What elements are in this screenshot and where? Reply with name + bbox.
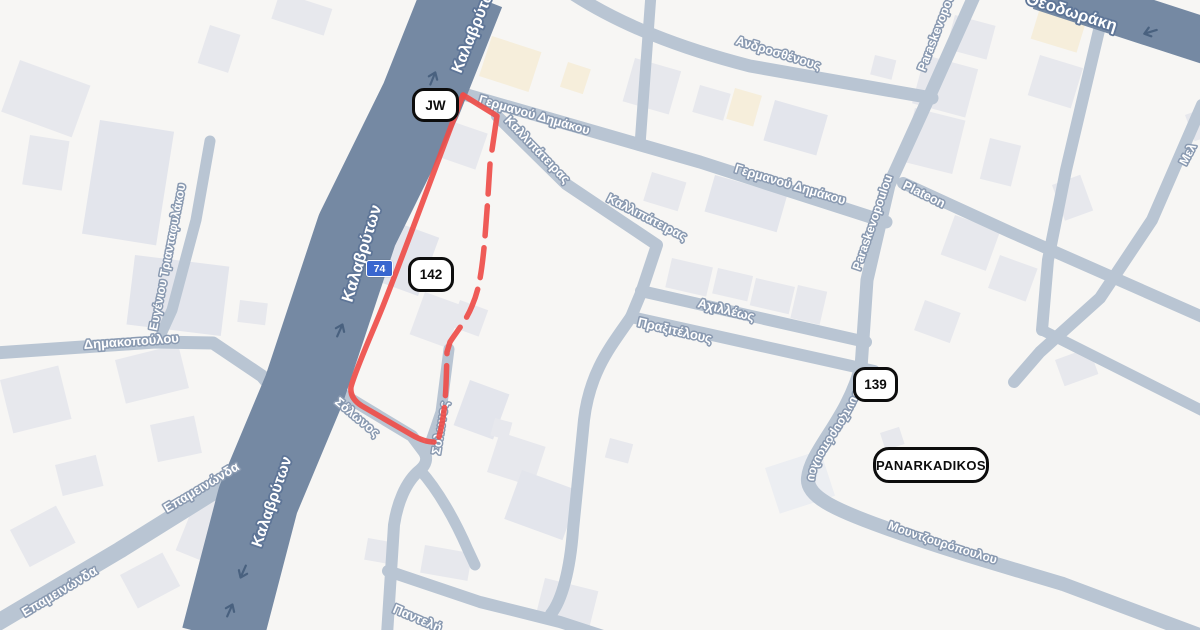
map-canvas[interactable]: Καλαβρύτων Καλαβρύτων Καλαβρύτων Θεοδωρά…	[0, 0, 1200, 630]
marker-142[interactable]: 142	[408, 257, 454, 292]
route-shield-74: 74	[366, 260, 393, 277]
marker-panarkadikos[interactable]: PANARKADIKOS	[873, 447, 989, 483]
map[interactable]: Καλαβρύτων Καλαβρύτων Καλαβρύτων Θεοδωρά…	[0, 0, 1200, 630]
marker-139[interactable]: 139	[853, 367, 898, 402]
marker-jw[interactable]: JW	[412, 88, 459, 122]
